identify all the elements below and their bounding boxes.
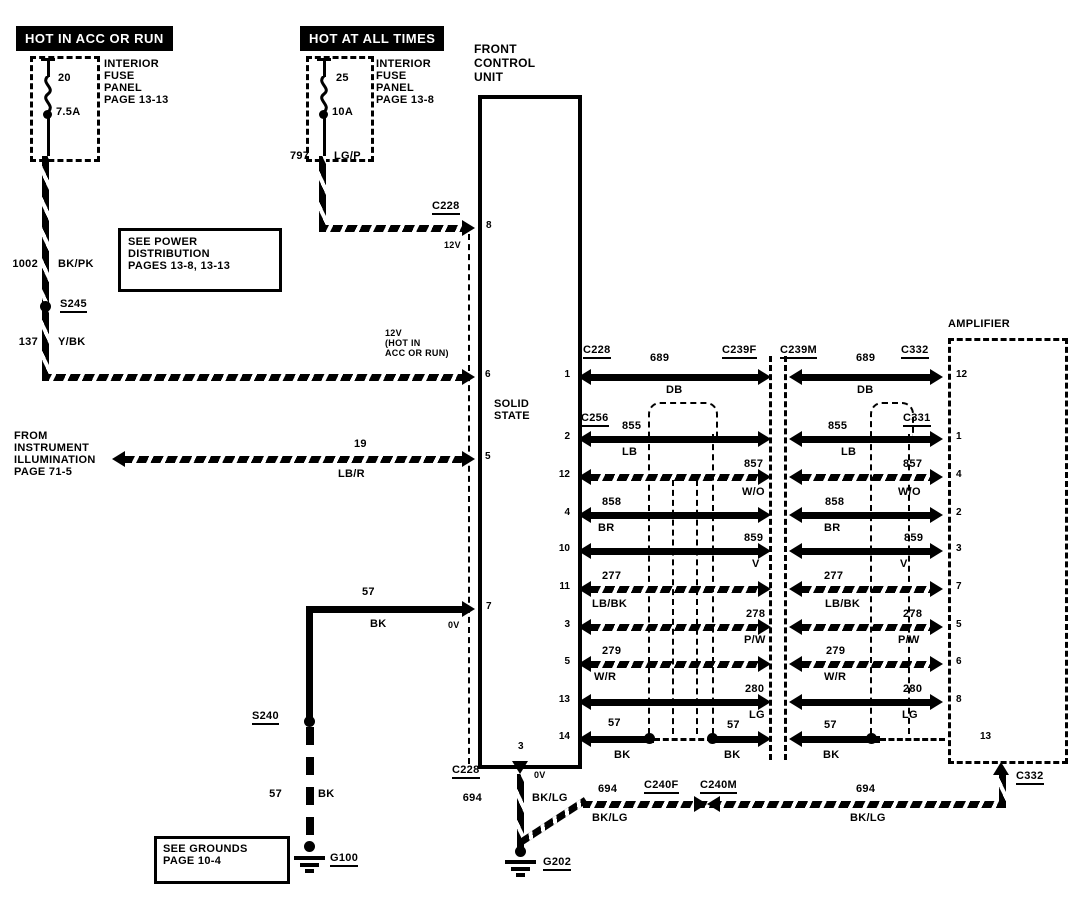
connector-c256-label: C256 [581,412,609,427]
wire-279-circuit-right: 279 [826,645,845,657]
wire-277-right [802,586,930,593]
fcu-pin-8: 8 [486,221,492,231]
banner-hot-in-acc-or-run: HOT IN ACC OR RUN [16,26,173,51]
wire-858-cap [578,507,591,523]
ground-g100-label: G100 [330,852,358,867]
wire-859-cap [930,543,943,559]
ground-g202-label: G202 [543,856,571,871]
fuse-right-rating-top: 25 [336,72,349,84]
wire-1002-circuit-label: 1002 [2,258,38,270]
shield-splice-dot [866,733,877,744]
fuse-right-lead-top [323,61,326,77]
fuse-left-rating-bottom: 7.5A [56,106,80,118]
fcu-solid-state-label: SOLID STATE [494,398,530,422]
wire-19-horizontal [125,456,462,463]
wire-855-cap [578,431,591,447]
wire-137-horizontal [42,374,462,381]
wire-279-color-left: W/R [594,671,616,683]
wire-797-vertical [319,156,326,232]
connector-c228-row-label: C228 [583,344,611,359]
fcu-pin-10: 10 [548,544,570,554]
fcu-pin-11: 11 [548,582,570,592]
splice-s245-label: S245 [60,298,87,313]
wire-859-right [802,548,930,555]
shield-line [648,434,650,734]
wire-857-cap [789,469,802,485]
wire-797-horizontal [319,225,462,232]
wire-278-circuit-left: 278 [746,608,765,620]
wire-689-cap [789,369,802,385]
fcu-pin6-volt-note: 12V (HOT IN ACC OR RUN) [385,328,449,358]
fcu-pin-3: 3 [548,620,570,630]
wire-57-horizontal [313,606,462,613]
fcu-bottom-pin-cap [512,761,528,774]
fcu-pin7-volt-label: 0V [448,620,460,630]
wire-57row-color-mid: BK [724,749,741,761]
wire-57row-color-left: BK [614,749,631,761]
wire-279-left [591,661,758,668]
fcu-pin-6: 6 [485,370,491,380]
shield-line [672,480,674,734]
wire-277-color-right: LB/BK [825,598,860,610]
wire-859-color-left: V [752,558,760,570]
wire-859-cap [578,543,591,559]
connector-c240m-label: C240M [700,779,737,794]
wire-137-circuit-label: 137 [8,336,38,348]
note-power-distribution-text: SEE POWER DISTRIBUTION PAGES 13-8, 13-13 [128,236,230,272]
wire-855-circuit-right: 855 [828,420,847,432]
wire-280-cap [789,694,802,710]
fcu-bottom-volt-label: 0V [534,770,546,780]
wire-855-left [591,436,758,443]
splice-s245-dot [40,301,51,312]
fcu-pin-1: 1 [548,370,570,380]
wire-57row-cap [789,731,802,747]
wire-797-color-label: LG/P [334,150,361,162]
wire-858-cap [930,507,943,523]
fcu-top-volt-label: 12V [444,240,461,250]
wire-694-color-label: BK/LG [532,792,568,804]
wire-689-left [591,374,758,381]
wire-694-run-color-right: BK/LG [850,812,886,824]
wire-19-color-label: LB/R [338,468,365,480]
wire-57row-left-b [713,736,758,743]
wire-57row-shield-link-left [654,738,713,741]
wire-857-cap [578,469,591,485]
fuse-right-panel-label: INTERIOR FUSE PANEL PAGE 13-8 [376,58,434,106]
wire-277-left [591,586,758,593]
fuse-right-element-icon [314,76,334,112]
amp-pin-13: 13 [980,732,991,742]
wire-277-cap [789,581,802,597]
wire-857-circuit-left: 857 [744,458,763,470]
wire-689-color-right: DB [857,384,874,396]
wire-859-color-right: V [900,558,908,570]
wire-279-cap [789,656,802,672]
wire-278-circuit-right: 278 [903,608,922,620]
wire-278-cap [930,619,943,635]
connector-c239f-label: C239F [722,344,757,359]
note-illumination-text: FROM INSTRUMENT ILLUMINATION PAGE 71-5 [14,430,96,478]
fcu-pin-12: 12 [548,470,570,480]
fuse-left-lead-bottom [47,116,50,156]
fcu-pin-14: 14 [548,732,570,742]
wire-857-right [802,474,930,481]
wire-855-cap [930,431,943,447]
wire-858-right [802,512,930,519]
amplifier-box [948,338,1068,764]
wire-855-right [802,436,930,443]
wire-280-circuit-left: 280 [745,683,764,695]
fcu-title: FRONT CONTROL UNIT [474,42,535,84]
shield-line [870,434,872,734]
fcu-pin-7: 7 [486,602,492,612]
wire-57-vertical-upper [306,606,313,724]
wire-57row-cap [578,731,591,747]
wire-694-run-color-left: BK/LG [592,812,628,824]
wire-279-circuit-left: 279 [602,645,621,657]
wire-57-circuit-label-upper: 57 [362,586,375,598]
note-grounds-text: SEE GROUNDS PAGE 10-4 [163,843,248,867]
fcu-pin-2: 2 [548,432,570,442]
wire-857-circuit-right: 857 [903,458,922,470]
wire-1002-color-label: BK/PK [58,258,94,270]
shield-line [712,434,714,734]
connector-c332-label: C332 [901,344,929,359]
wire-57-arrow-into-fcu [462,601,475,617]
connector-c239m-line [784,356,787,760]
wire-57-circuit-label-lower: 57 [254,788,282,800]
wire-858-cap [789,507,802,523]
wire-858-color-left: BR [598,522,615,534]
wire-858-circuit-right: 858 [825,496,844,508]
wire-689-cap [930,369,943,385]
fuse-right-lead-bottom [323,116,326,156]
wire-279-right [802,661,930,668]
wire-277-color-left: LB/BK [592,598,627,610]
shield-splice-dot [644,733,655,744]
connector-c228-top-label: C228 [432,200,460,215]
wire-858-left [591,512,758,519]
wire-280-right [802,699,930,706]
wire-57-vertical-lower [306,727,314,845]
fuse-left-lead-top [47,61,50,77]
wire-797-circuit-label: 797 [290,150,309,162]
amplifier-title: AMPLIFIER [948,318,1010,330]
wire-19-start-cap [112,451,125,467]
wire-278-right [802,624,930,631]
wire-859-circuit-left: 859 [744,532,763,544]
wiring-diagram: HOT IN ACC OR RUN HOT AT ALL TIMES 20 7.… [0,0,1091,900]
wire-694-run-circuit-right: 694 [856,783,875,795]
wire-278-color-left: P/W [744,634,766,646]
fuse-right-rating-bottom: 10A [332,106,353,118]
connector-c240-cap [694,796,707,812]
wire-694-run-circuit-left: 694 [598,783,617,795]
shield-loop-right [870,402,914,436]
connector-c332-bottom-cap [993,762,1009,775]
wire-277-circuit-left: 277 [602,570,621,582]
wire-57row-color-right: BK [823,749,840,761]
wire-855-color-left: LB [622,446,637,458]
wire-859-cap [789,543,802,559]
banner-hot-at-all-times: HOT AT ALL TIMES [300,26,444,51]
wire-689-right [802,374,930,381]
wire-857-cap [930,469,943,485]
shield-line [908,434,910,734]
wire-277-circuit-right: 277 [824,570,843,582]
shield-line [696,480,698,734]
wire-278-cap [789,619,802,635]
wire-855-circuit-left: 855 [622,420,641,432]
fuse-left-panel-label: INTERIOR FUSE PANEL PAGE 13-13 [104,58,169,106]
wire-57-color-label-upper: BK [370,618,387,630]
connector-c240-cap [707,796,720,812]
wire-57row-circuit-right: 57 [824,719,837,731]
wire-855-color-right: LB [841,446,856,458]
wire-279-cap [578,656,591,672]
wire-280-left [591,699,758,706]
wire-859-circuit-right: 859 [904,532,923,544]
fcu-pin-5-left: 5 [485,452,491,462]
connector-c240f-label: C240F [644,779,679,794]
wire-855-cap [789,431,802,447]
wire-859-left [591,548,758,555]
wire-689-cap [578,369,591,385]
wire-857-color-left: W/O [742,486,765,498]
wire-278-left [591,624,758,631]
fcu-pin-4: 4 [548,508,570,518]
wire-137-color-label: Y/BK [58,336,85,348]
wire-1002-137-vertical [42,156,49,381]
wire-280-color-left: LG [749,709,765,721]
wire-858-circuit-left: 858 [602,496,621,508]
splice-s240-label: S240 [252,710,279,725]
connector-c228-face-line [468,234,470,764]
splice-s240-dot [304,716,315,727]
wire-689-circuit-right: 689 [856,352,875,364]
wire-280-cap [930,694,943,710]
wire-280-circuit-right: 280 [903,683,922,695]
fuse-left-rating-top: 20 [58,72,71,84]
connector-c332-bottom-label: C332 [1016,770,1044,785]
wire-279-color-right: W/R [824,671,846,683]
wire-689-color-left: DB [666,384,683,396]
wire-694-circuit-label: 694 [454,792,482,804]
wire-57row-circuit-mid: 57 [727,719,740,731]
wire-689-circuit-left: 689 [650,352,669,364]
fuse-left-element-icon [38,76,58,112]
wire-278-cap [578,619,591,635]
wire-857-left [591,474,758,481]
wire-57-color-label-lower: BK [318,788,335,800]
wire-57row-shield-link-right [880,738,945,741]
connector-c228-bottom-label: C228 [452,764,480,779]
wire-277-cap [930,581,943,597]
shield-splice-dot [707,733,718,744]
fcu-pin-5-right: 5 [548,657,570,667]
wire-57row-circuit-left: 57 [608,717,621,729]
connector-c239f-line [769,356,772,760]
wire-694-horizontal [583,801,1006,808]
wire-858-color-right: BR [824,522,841,534]
fcu-pin-13: 13 [548,695,570,705]
wire-19-circuit-label: 19 [354,438,367,450]
wire-280-cap [578,694,591,710]
fcu-pin-3-bottom: 3 [518,742,524,752]
wire-277-cap [578,581,591,597]
shield-loop-left [648,402,718,436]
wire-279-cap [930,656,943,672]
wire-694-diagonal [520,797,588,844]
